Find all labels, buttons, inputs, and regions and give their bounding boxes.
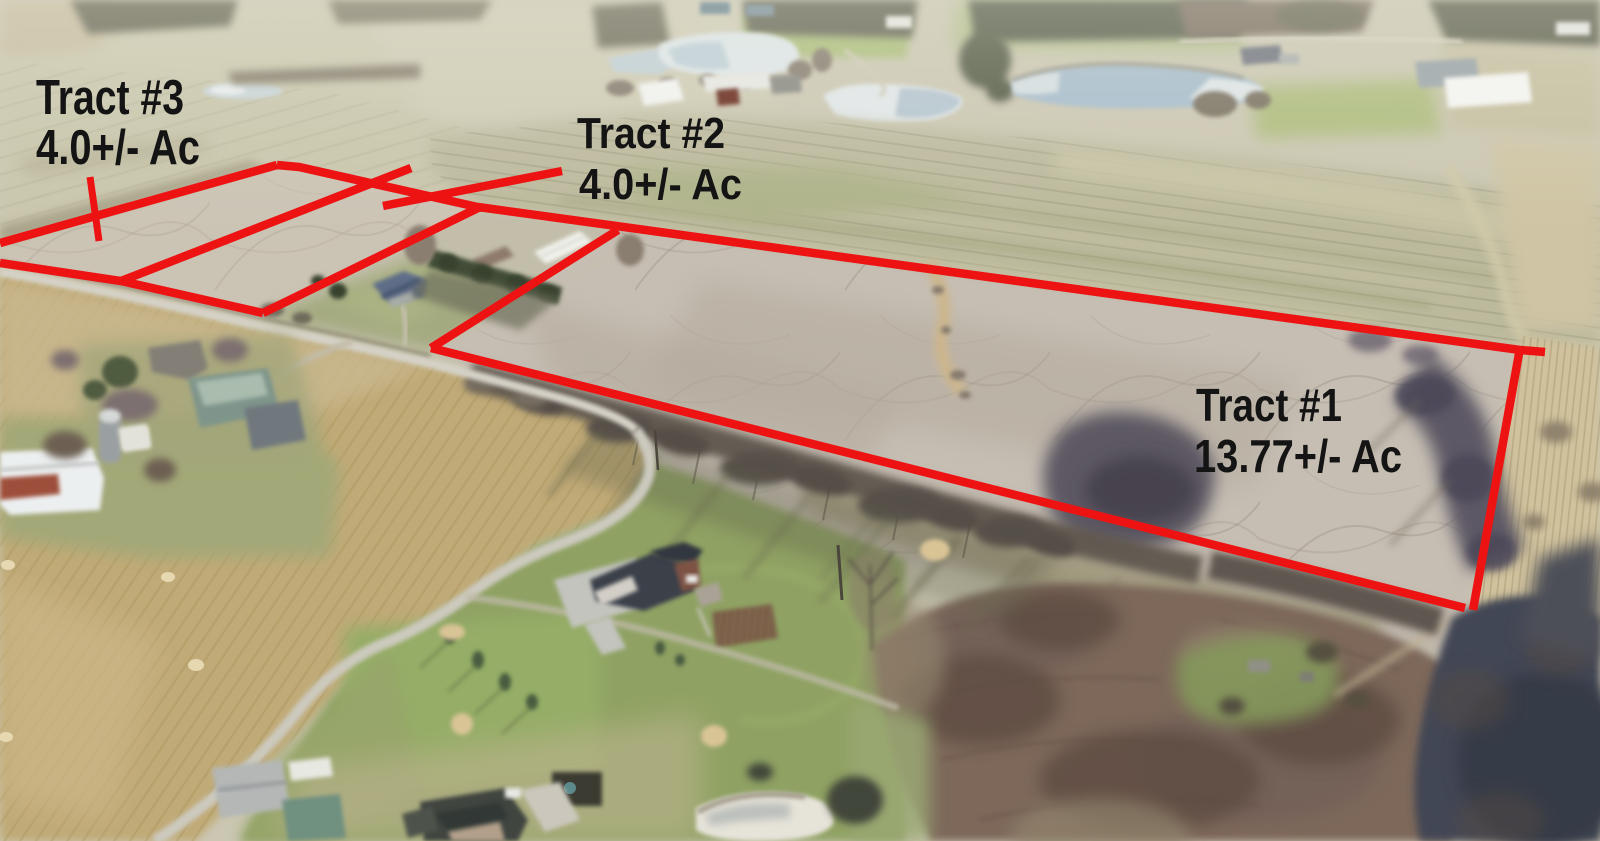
- svg-text:13.77+/- Ac: 13.77+/- Ac: [1194, 430, 1402, 482]
- svg-text:Tract #3: Tract #3: [36, 71, 184, 125]
- svg-text:Tract #2: Tract #2: [577, 109, 725, 158]
- svg-text:4.0+/- Ac: 4.0+/- Ac: [579, 160, 742, 209]
- svg-text:4.0+/- Ac: 4.0+/- Ac: [36, 121, 200, 175]
- svg-text:Tract #1: Tract #1: [1196, 379, 1342, 431]
